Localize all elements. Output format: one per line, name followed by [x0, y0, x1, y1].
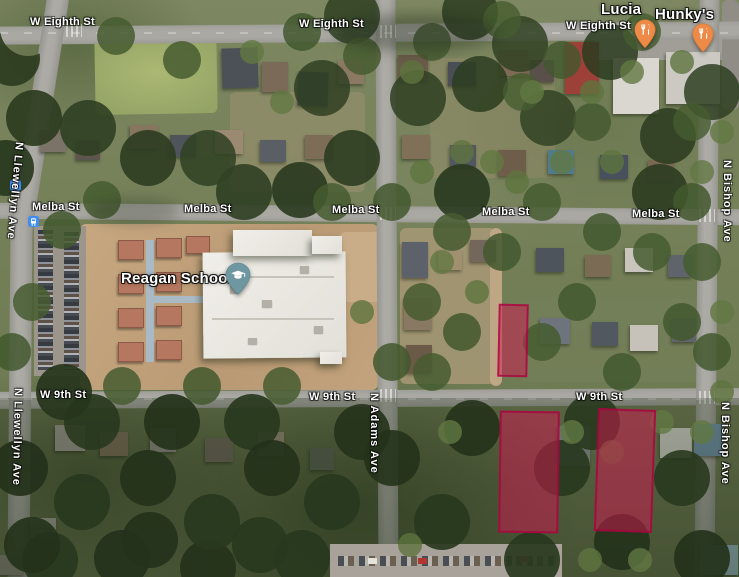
- dirt-patch: [340, 232, 382, 302]
- restaurant-pin-icon[interactable]: [692, 23, 714, 58]
- roof-unit: [300, 266, 309, 273]
- building: [500, 50, 528, 76]
- street-label-melba-st: Melba St: [482, 206, 530, 218]
- portable-classroom: [118, 342, 144, 362]
- highlighted-parcel[interactable]: [497, 304, 529, 378]
- building: [438, 250, 462, 270]
- school-pin-icon[interactable]: [225, 262, 251, 301]
- building: [398, 55, 428, 81]
- street-label-n-llewellyn-ave: N Llewellyn Ave: [10, 388, 24, 486]
- poi-label-hunkys[interactable]: Hunky's: [655, 6, 714, 23]
- roof-unit: [248, 338, 257, 344]
- building: [648, 160, 674, 182]
- building: [592, 322, 618, 346]
- building: [221, 47, 258, 88]
- poi-label-lucia[interactable]: Lucia: [601, 1, 641, 18]
- reagan-school-building: [312, 236, 342, 254]
- street-label-melba-st: Melba St: [184, 203, 232, 215]
- street-label-n-bishop-ave: N Bishop Ave: [721, 160, 733, 243]
- building: [536, 248, 564, 272]
- satellite-map[interactable]: W Eighth St W Eighth St W Eighth St Melb…: [0, 0, 739, 577]
- red-roof-building: [565, 42, 599, 94]
- crosswalk: [699, 209, 715, 222]
- building: [404, 298, 432, 330]
- building: [170, 135, 196, 157]
- tree-canopy-layer: [0, 0, 24, 24]
- roof-unit: [262, 300, 272, 307]
- building: [402, 135, 430, 159]
- building: [450, 145, 476, 167]
- street-label-w-9th-st: W 9th St: [576, 391, 622, 403]
- restaurant-pin-icon[interactable]: [634, 19, 656, 54]
- parked-cars-row: [38, 230, 53, 370]
- building: [406, 345, 432, 373]
- building: [672, 318, 696, 342]
- street-label-melba-st: Melba St: [32, 201, 80, 213]
- roof-unit: [314, 326, 323, 333]
- school-walkway: [150, 296, 205, 303]
- street-label-w-9th-st: W 9th St: [40, 389, 86, 401]
- portable-classroom: [186, 236, 210, 254]
- highlighted-parcel[interactable]: [594, 408, 656, 533]
- building: [297, 71, 328, 106]
- building: [585, 255, 611, 277]
- building: [305, 135, 333, 159]
- portable-classroom: [118, 308, 144, 328]
- street-label-w-eighth-st: W Eighth St: [30, 16, 95, 28]
- commercial-building: [613, 58, 659, 114]
- portable-classroom: [118, 240, 144, 260]
- portable-classroom: [156, 340, 182, 360]
- building: [338, 60, 364, 84]
- poi-label-reagan-school[interactable]: Reagan School: [121, 270, 232, 287]
- street-label-n-adams-ave: N Adams Ave: [368, 393, 380, 474]
- building: [130, 125, 158, 149]
- commercial-building: [666, 52, 720, 104]
- building: [260, 140, 286, 162]
- building-block: [722, 0, 739, 110]
- highlighted-parcel[interactable]: [498, 411, 560, 534]
- reagan-school-building: [233, 230, 312, 256]
- car: [520, 556, 529, 562]
- building: [40, 130, 66, 152]
- building: [668, 255, 692, 277]
- park-lawn: [94, 37, 217, 115]
- parked-cars-row: [64, 232, 79, 370]
- building: [630, 325, 658, 351]
- car: [368, 558, 377, 564]
- roof-seam: [212, 318, 334, 320]
- building: [548, 150, 574, 174]
- building: [625, 248, 653, 272]
- street-label-melba-st: Melba St: [632, 208, 680, 220]
- building: [402, 242, 428, 278]
- yard-patch: [230, 92, 365, 192]
- street-label-w-eighth-st: W Eighth St: [566, 20, 631, 32]
- street-label-n-bishop-ave: N Bishop Ave: [719, 402, 731, 485]
- portable-classroom: [156, 306, 182, 326]
- building: [448, 62, 476, 86]
- building: [600, 155, 628, 179]
- building: [215, 130, 243, 154]
- tree-shadow: [90, 198, 180, 224]
- bus-stop-icon[interactable]: [28, 214, 39, 232]
- building: [498, 150, 526, 176]
- street-label-melba-st: Melba St: [332, 204, 380, 216]
- portable-classroom: [156, 238, 182, 258]
- building: [76, 140, 100, 160]
- building: [530, 60, 554, 82]
- street-label-w-9th-st: W 9th St: [309, 391, 355, 403]
- building: [540, 318, 570, 344]
- building: [262, 62, 288, 92]
- car: [418, 558, 427, 564]
- street-label-w-eighth-st: W Eighth St: [299, 18, 364, 30]
- building: [470, 240, 496, 262]
- reagan-school-building: [320, 352, 342, 364]
- crosswalk: [380, 207, 396, 220]
